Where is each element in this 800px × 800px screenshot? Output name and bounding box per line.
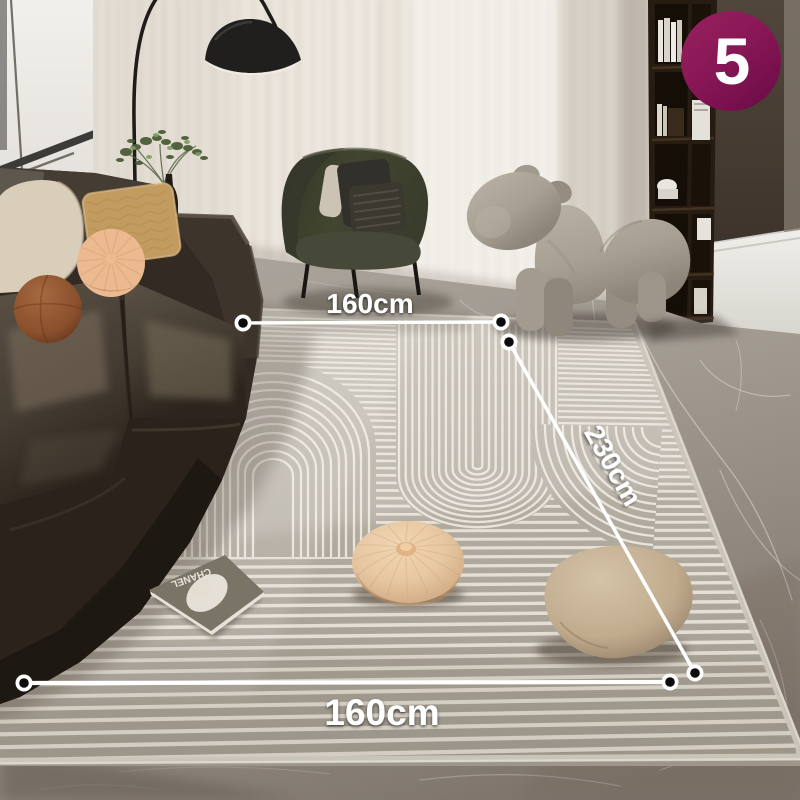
svg-text:5: 5	[714, 24, 751, 98]
svg-text:160cm: 160cm	[326, 288, 413, 319]
svg-text:160cm: 160cm	[324, 692, 439, 733]
